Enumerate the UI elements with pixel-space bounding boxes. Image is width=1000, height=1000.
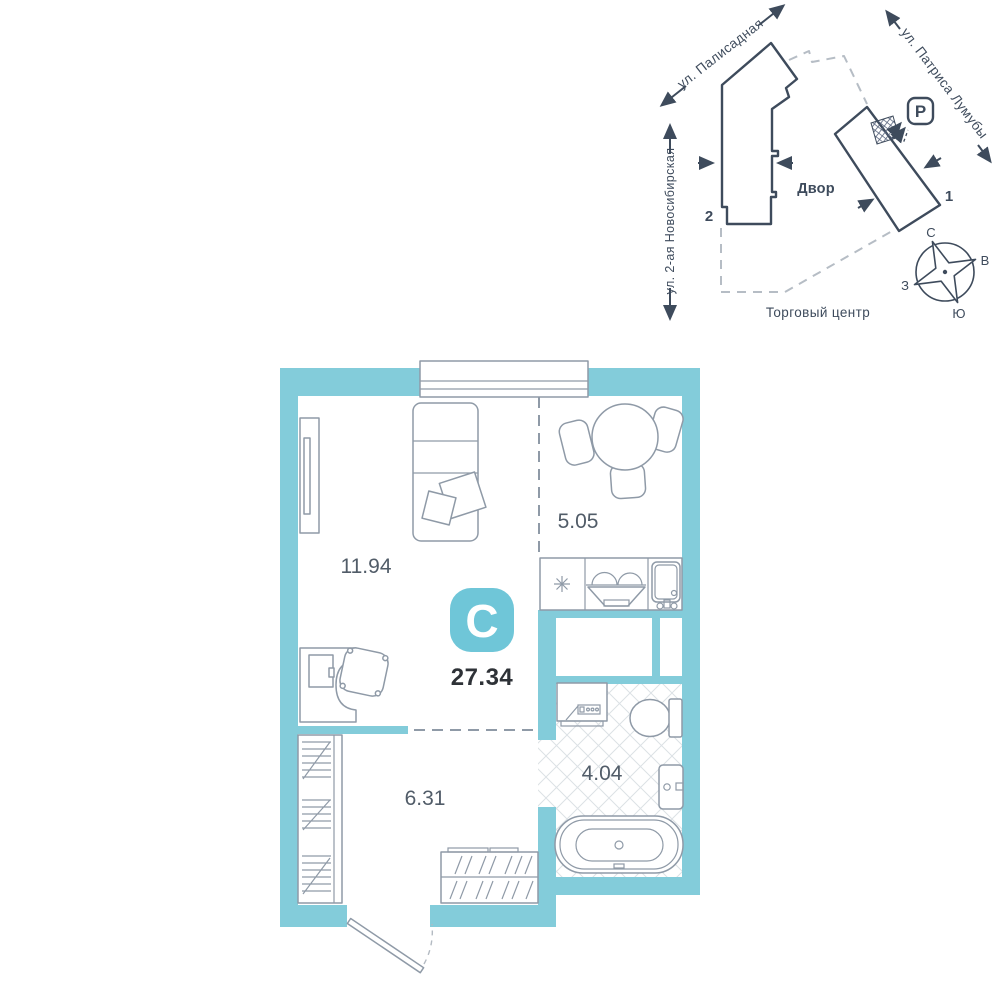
compass-east: В	[981, 253, 990, 268]
site-boundary-dashed-top	[789, 51, 867, 104]
compass-north: С	[926, 225, 935, 240]
parking-label: P	[915, 102, 926, 121]
street-label-novosibirskaya: ул. 2-ая Новосибирская	[663, 148, 677, 295]
shoe-cabinet	[441, 848, 538, 903]
total-area: 27.34	[451, 664, 514, 691]
office-chair	[338, 646, 390, 698]
bathroom-area: 4.04	[582, 762, 623, 785]
site-boundary-dashed-bottom	[721, 228, 894, 292]
floorplan-page: P ул. Палисадная ул. Патриса Лумубы ул. …	[0, 0, 1000, 1000]
kitchen-sink	[652, 562, 680, 609]
bathtub	[555, 816, 683, 873]
living-room-area: 11.94	[341, 555, 392, 578]
building-1-number: 1	[945, 188, 953, 205]
bathroom-sink	[659, 765, 683, 809]
hall-wardrobe	[298, 735, 342, 903]
courtyard-label: Двор	[797, 181, 835, 197]
tv-unit	[300, 418, 319, 533]
kitchen-counter	[540, 558, 682, 610]
studio-badge: С	[450, 588, 514, 652]
hallway-area: 6.31	[405, 787, 446, 810]
floor-plan: 11.94 5.05 6.31 4.04 С 27.34	[270, 355, 710, 985]
dining-table	[592, 404, 658, 470]
compass-west: З	[901, 278, 909, 293]
shopping-center-label: Торговый центр	[766, 305, 870, 320]
bathroom-door-gap-tiles	[538, 740, 556, 807]
window	[420, 361, 588, 397]
compass: С В З Ю	[901, 225, 989, 321]
compass-south: Ю	[952, 306, 965, 321]
washing-machine	[557, 683, 607, 726]
toilet	[630, 699, 682, 737]
site-plan: P ул. Палисадная ул. Патриса Лумубы ул. …	[640, 0, 1000, 340]
sofa	[413, 403, 486, 541]
building-2-outline	[722, 43, 797, 224]
kitchen-area: 5.05	[558, 510, 599, 533]
studio-badge-letter: С	[465, 595, 498, 647]
entry-door	[347, 919, 432, 973]
building-2-number: 2	[705, 208, 713, 225]
